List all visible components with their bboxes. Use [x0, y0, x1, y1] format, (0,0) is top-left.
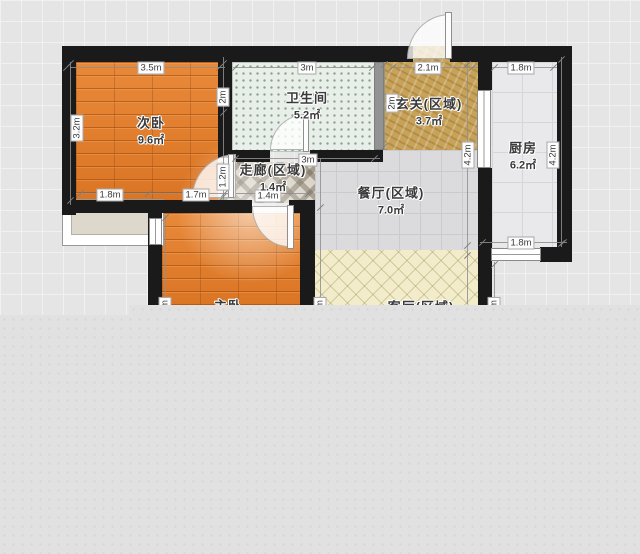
dim-line-kitchen-right	[561, 57, 562, 247]
dim-bathroom-top: 3m	[297, 62, 316, 75]
dim-bedroom1-height-cut: m	[159, 297, 172, 305]
room-name: 厨房	[509, 138, 537, 157]
wall-top-right[interactable]	[450, 46, 572, 62]
canvas-edge-grid	[0, 305, 129, 315]
dim-line-bedroom1-left	[165, 215, 166, 305]
room-label-bathroom: 卫生间 5.2㎡	[286, 88, 328, 123]
dim-line-living-left	[320, 158, 321, 305]
room-name: 走廊(区域)	[240, 160, 307, 179]
room-name: 客厅(区域)	[388, 297, 455, 306]
room-name: 玄关(区域)	[396, 94, 463, 113]
room-name: 次卧	[137, 113, 165, 132]
room-label-bedroom2: 次卧 9.6㎡	[137, 113, 165, 148]
dim-kitchen-right: 4.2m	[547, 141, 560, 168]
wall-bedroom1-right[interactable]	[300, 200, 315, 305]
wall-entry-kitchen-upper[interactable]	[478, 62, 492, 90]
room-area: 1.4㎡	[240, 179, 307, 195]
dim-kitchen-top: 1.8m	[507, 62, 534, 75]
dim-bedroom2-right-lower: 1.2m	[217, 163, 230, 190]
room-label-kitchen: 厨房 6.2㎡	[509, 138, 537, 173]
wall-bedroom2-bottom[interactable]	[62, 200, 252, 213]
entry-door-leaf[interactable]	[445, 12, 452, 59]
floorplan-canvas[interactable]: 3.5m 3.2m 2m 1.2m 1.8m 1.7m 3m 3m 2m 2.1…	[0, 0, 640, 305]
room-area: 7.0㎡	[358, 202, 425, 218]
room-area: 5.2㎡	[286, 107, 328, 123]
dim-bedroom2-height: 3.2m	[71, 114, 84, 141]
dim-right-height-cut: m	[488, 297, 501, 305]
dim-bedroom2-bottom-left: 1.8m	[96, 189, 123, 202]
room-label-bedroom1: 主卧	[214, 296, 242, 306]
dim-living-height-cut: m	[314, 297, 327, 305]
room-name: 餐厅(区域)	[358, 183, 425, 202]
dim-bedroom2-width: 3.5m	[137, 62, 164, 75]
room-label-dining: 餐厅(区域) 7.0㎡	[358, 183, 425, 218]
page-background-strip	[129, 305, 640, 315]
dim-kitchen-bottom: 1.8m	[507, 237, 534, 250]
room-name: 主卧	[214, 296, 242, 306]
room-area: 3.7㎡	[396, 113, 463, 129]
bedroom1-door-leaf[interactable]	[287, 205, 294, 249]
dim-bedroom2-bottom-right: 1.7m	[182, 189, 209, 202]
room-label-living: 客厅(区域)	[388, 297, 455, 306]
room-label-corridor: 走廊(区域) 1.4㎡	[240, 160, 307, 195]
room-area: 6.2㎡	[509, 157, 537, 173]
entry-door-arc[interactable]	[407, 14, 450, 59]
wall-top-left[interactable]	[62, 46, 413, 62]
wall-entry-kitchen-lower[interactable]	[478, 168, 492, 247]
sliding-door-kitchen[interactable]	[477, 90, 491, 168]
wall-bathroom-entry[interactable]	[374, 62, 384, 150]
room-area: 9.6㎡	[137, 132, 165, 148]
window-bedroom1-left[interactable]	[149, 218, 162, 245]
dim-entry-top: 2.1m	[414, 62, 441, 75]
room-name: 卫生间	[286, 88, 328, 107]
dim-kitchen-left: 4.2m	[462, 141, 475, 168]
page-background	[0, 315, 640, 554]
dim-bedroom2-right-upper: 2m	[217, 87, 230, 106]
room-label-entry: 玄关(区域) 3.7㎡	[396, 94, 463, 129]
dim-line-kitchen-left	[467, 62, 468, 304]
window-kitchen-bottom[interactable]	[491, 248, 541, 261]
floorplan-viewer: 3.5m 3.2m 2m 1.2m 1.8m 1.7m 3m 3m 2m 2.1…	[0, 0, 640, 554]
